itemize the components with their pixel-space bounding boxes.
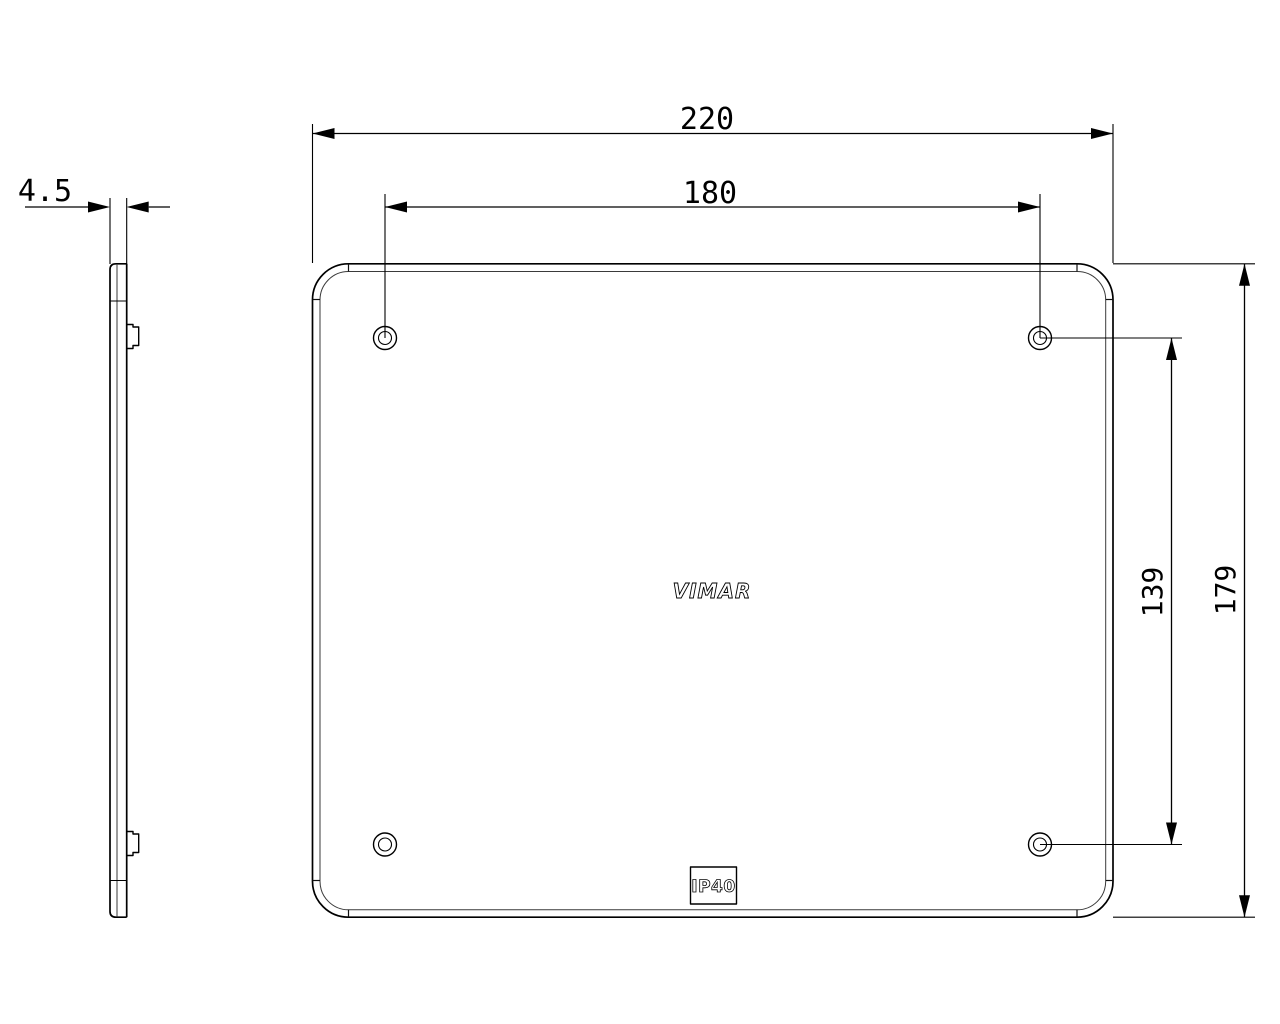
arrowhead-width-left xyxy=(313,128,335,139)
arrowhead-holes-top xyxy=(1166,338,1177,360)
arrowhead-holes-bottom xyxy=(1166,823,1177,845)
ip-rating-label: IP40 xyxy=(691,877,735,897)
side-profile-outline xyxy=(110,264,127,917)
dim-label-hole-spacing-v: 139 xyxy=(1136,567,1169,618)
dimension-hole-spacing-vertical: 139 xyxy=(1040,338,1182,845)
brand-logo: VIMAR xyxy=(673,579,752,603)
screw-hole-bottom-left-outer xyxy=(374,833,397,856)
screw-hole-bottom-left-inner xyxy=(379,838,392,851)
arrowhead-holes-right xyxy=(1018,202,1040,213)
side-view xyxy=(110,198,139,917)
front-view: VIMAR IP40 xyxy=(313,264,1114,917)
arrowhead-holes-left xyxy=(385,202,407,213)
ip-rating-badge: IP40 xyxy=(691,867,737,904)
side-clip-top xyxy=(127,325,139,349)
drawing-canvas: 4.5 VIMAR xyxy=(0,0,1280,1024)
side-clip-bottom xyxy=(127,832,139,856)
dimension-overall-height: 179 xyxy=(1113,264,1255,917)
arrowhead-thickness-left xyxy=(88,202,110,213)
dimension-thickness: 4.5 xyxy=(18,174,170,213)
dimension-hole-spacing-horizontal: 180 xyxy=(385,176,1040,338)
dim-label-thickness: 4.5 xyxy=(18,174,72,209)
dim-label-hole-spacing-h: 180 xyxy=(683,176,737,211)
technical-drawing: 4.5 VIMAR xyxy=(0,0,1280,1024)
arrowhead-width-right xyxy=(1091,128,1113,139)
arrowhead-height-top xyxy=(1239,264,1250,286)
arrowhead-height-bottom xyxy=(1239,895,1250,917)
dim-label-width: 220 xyxy=(680,102,734,137)
dim-label-height: 179 xyxy=(1209,565,1242,616)
arrowhead-thickness-right xyxy=(127,202,149,213)
